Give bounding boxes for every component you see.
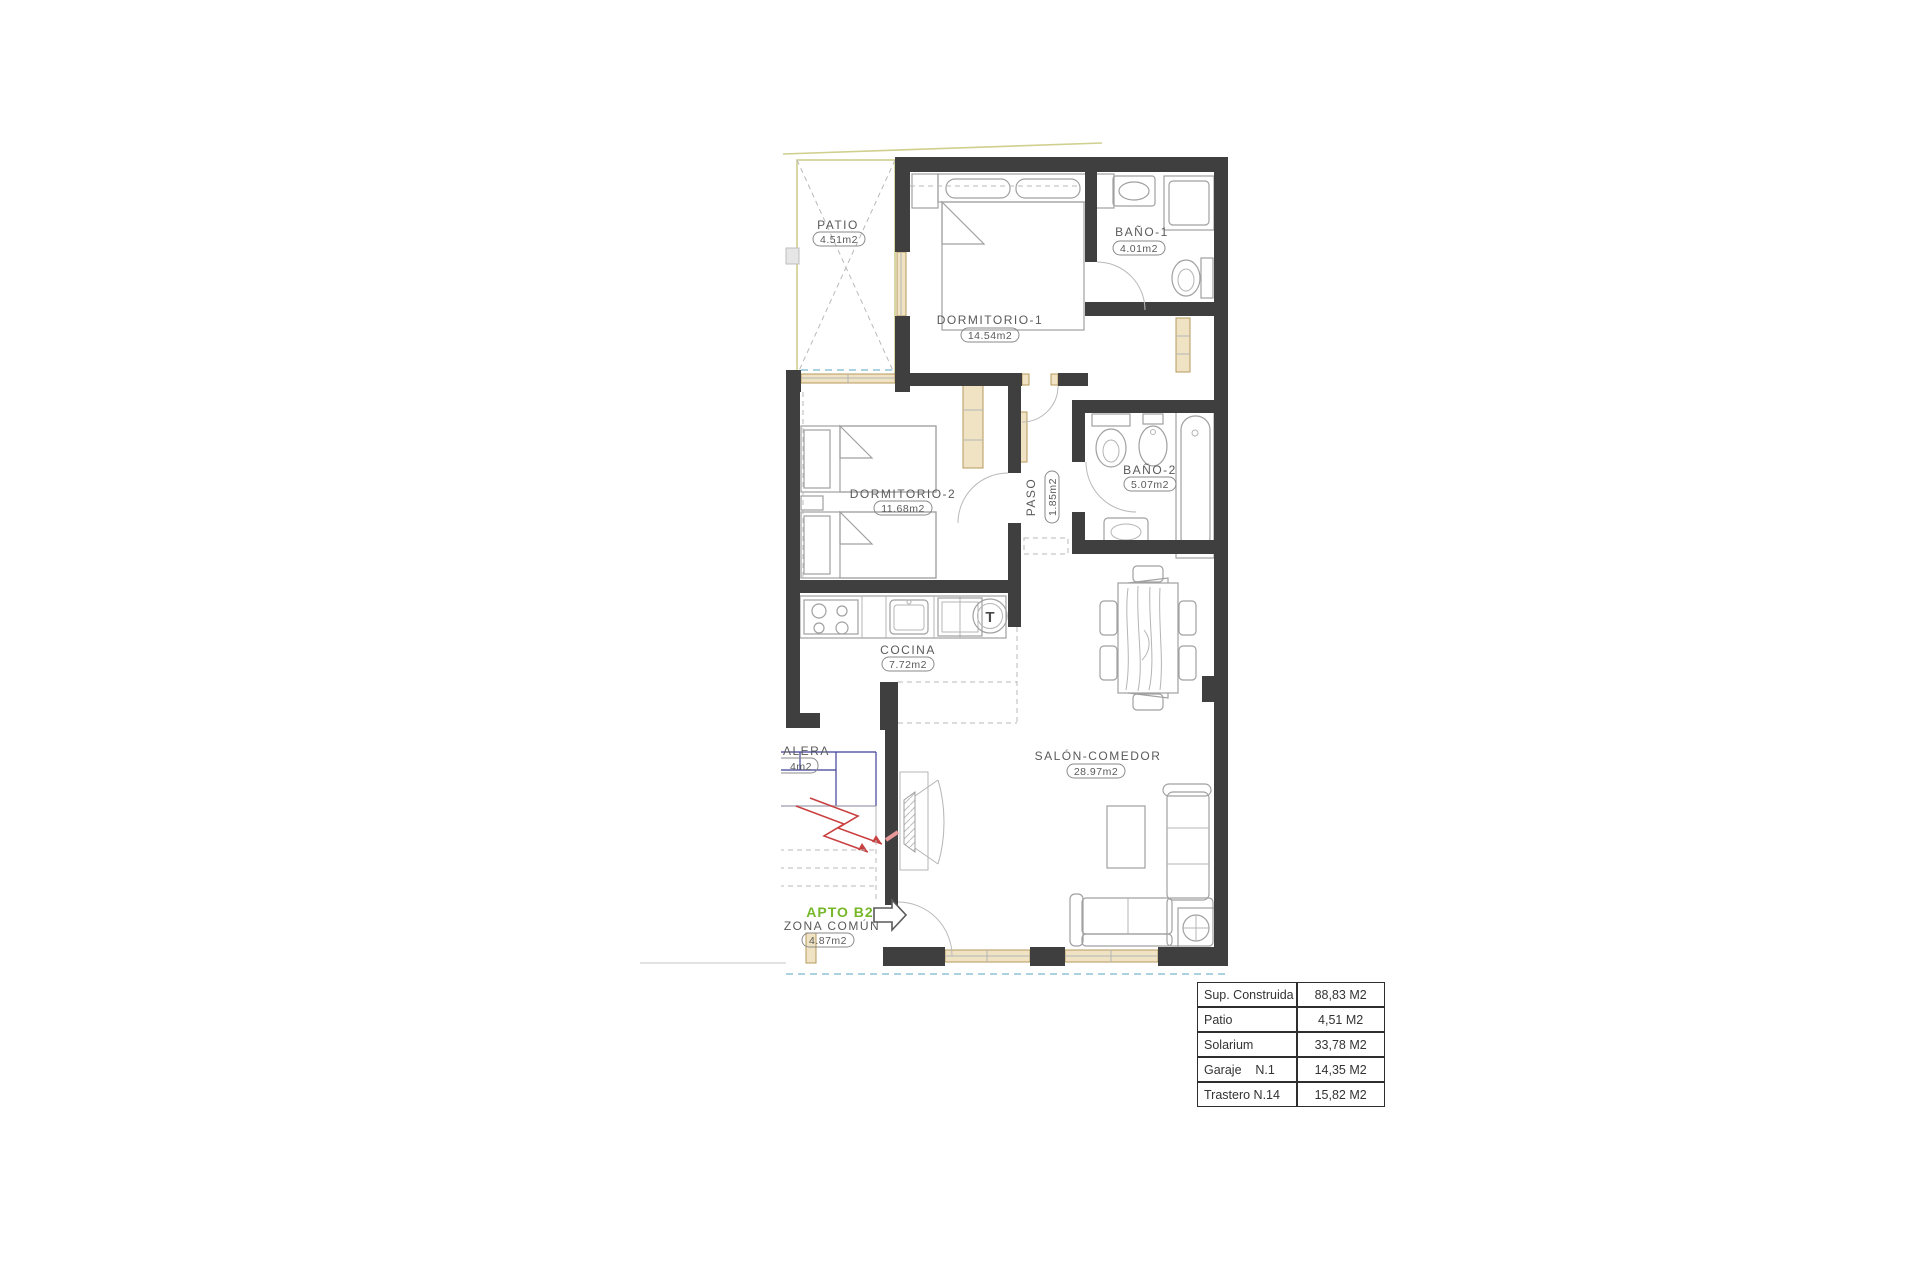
room-label-bano2: BAÑO-2 [1123, 463, 1177, 477]
table-row: Patio 4,51 M2 [1197, 1007, 1385, 1032]
coffee-table [1107, 806, 1145, 868]
room-area-patio: 4.51m2 [820, 234, 858, 246]
room-label-paso: PASO [1024, 478, 1038, 516]
table-row: Trastero N.14 15,82 M2 [1197, 1082, 1385, 1107]
area-summary-table: Sup. Construida 88,83 M2 Patio 4,51 M2 S… [1197, 982, 1385, 1107]
stairs-escalera [770, 752, 882, 900]
door-swings [898, 262, 1145, 956]
water-heater-label: T [985, 609, 994, 626]
summary-label: Solarium [1197, 1032, 1297, 1057]
wardrobe-dormitorio2 [963, 382, 983, 468]
room-area-bano2: 5.07m2 [1131, 479, 1169, 491]
beds-single-dormitorio2 [801, 392, 936, 578]
patio-diagonals [797, 160, 895, 375]
kitchen-counter: T [800, 596, 1007, 638]
walls [786, 157, 1228, 966]
doorframe-paso [1020, 412, 1027, 462]
summary-value: 14,35 M2 [1297, 1057, 1385, 1082]
summary-label: Garaje N.1 [1197, 1057, 1297, 1082]
summary-value: 88,83 M2 [1297, 982, 1385, 1007]
carpentry [801, 252, 1190, 963]
summary-label: Sup. Construida [1197, 982, 1297, 1007]
summary-label: Patio [1197, 1007, 1297, 1032]
room-label-bano1: BAÑO-1 [1115, 225, 1169, 239]
table-row: Garaje N.1 14,35 M2 [1197, 1057, 1385, 1082]
room-label-salon: SALÓN-COMEDOR [1035, 748, 1162, 763]
sofa-corner [1070, 784, 1216, 948]
room-area-cocina: 7.72m2 [889, 659, 927, 671]
room-label-dormitorio1: DORMITORIO-1 [937, 313, 1043, 327]
room-area-dormitorio1: 14.54m2 [968, 330, 1012, 342]
room-label-patio: PATIO [817, 218, 859, 232]
room-area-paso: 1.85m2 [1047, 478, 1059, 516]
dining-table [1100, 566, 1196, 710]
room-area-bano1: 4.01m2 [1120, 243, 1158, 255]
summary-value: 15,82 M2 [1297, 1082, 1385, 1107]
bed-double-dormitorio1 [910, 174, 1114, 330]
summary-value: 33,78 M2 [1297, 1032, 1385, 1057]
wardrobe-hall [1176, 318, 1190, 372]
room-area-dormitorio2: 11.68m2 [881, 503, 925, 515]
room-area-zona-comun: 4.87m2 [809, 935, 847, 947]
tv-unit [900, 772, 944, 870]
summary-value: 4,51 M2 [1297, 1007, 1385, 1032]
room-label-escalera-cropped: ALERA [783, 744, 830, 758]
table-row: Sup. Construida 88,83 M2 [1197, 982, 1385, 1007]
room-area-escalera-cropped: 4m2 [790, 761, 812, 773]
table-row: Solarium 33,78 M2 [1197, 1032, 1385, 1057]
summary-label: Trastero N.14 [1197, 1082, 1297, 1107]
apartment-tag: APTO B2 [806, 904, 873, 920]
page-canvas: T [0, 0, 1920, 1280]
floor-plan: T [0, 0, 1920, 1280]
room-label-zona-comun: ZONA COMÚN [784, 918, 880, 933]
room-label-cocina: COCINA [880, 643, 936, 657]
room-label-dormitorio2: DORMITORIO-2 [850, 487, 956, 501]
room-area-salon: 28.97m2 [1074, 766, 1118, 778]
